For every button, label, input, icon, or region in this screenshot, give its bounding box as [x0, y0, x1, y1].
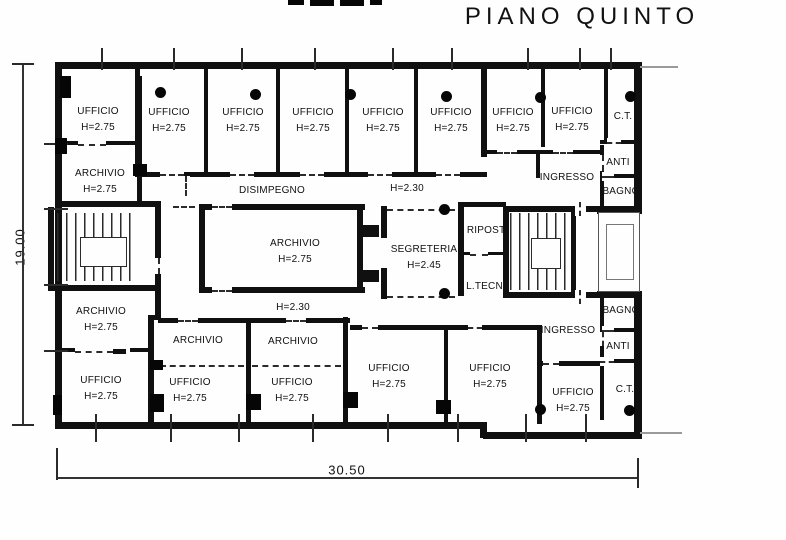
column-dot [439, 204, 450, 215]
room-label-ingresso-22: INGRESSO [541, 323, 595, 339]
dimension-tick [610, 48, 612, 70]
wall [199, 204, 205, 293]
dimension-tick [585, 414, 587, 442]
door-dash [212, 286, 232, 295]
room-name: BAGNO [602, 305, 639, 316]
room-height: H=2.75 [492, 121, 533, 137]
room-name: INGRESSO [541, 325, 595, 336]
room-height: H=2.75 [77, 120, 118, 136]
room-label-disimpegno-10: DISIMPEGNO [239, 183, 305, 199]
door-dash [607, 138, 621, 147]
door-dash [575, 202, 584, 216]
wall [600, 363, 604, 420]
room-name: ARCHIVIO [270, 238, 320, 249]
wall [483, 432, 640, 439]
room-name: UFFICIO [80, 375, 121, 386]
wall-pillar [150, 360, 163, 370]
room-label-archivio-15: ARCHIVIOH=2.75 [270, 236, 320, 268]
room-label-ufficio-4: UFFICIOH=2.75 [362, 105, 403, 137]
room-height: H=2.75 [270, 252, 320, 268]
room-name: UFFICIO [492, 107, 533, 118]
door-dash [286, 316, 306, 325]
room-height: H=2.75 [292, 121, 333, 137]
wall [541, 69, 545, 147]
column-dot [441, 91, 452, 102]
room-label-ufficio-31: UFFICIOH=2.75 [552, 385, 593, 417]
room-label-ufficio-7: UFFICIOH=2.75 [551, 104, 592, 136]
room-name: UFFICIO [292, 107, 333, 118]
wall [130, 348, 149, 352]
stairwell-right-landing [531, 238, 561, 269]
room-label-ufficio-0: UFFICIOH=2.75 [77, 104, 118, 136]
column-dot [439, 288, 450, 299]
room-label-ltecn-18: L.TECN. [466, 279, 506, 295]
wall-pillar [150, 394, 164, 412]
dimension-tick [527, 48, 529, 70]
column-dot [250, 89, 261, 100]
dimension-end-tick [12, 63, 34, 65]
room-height: H=2.75 [222, 121, 263, 137]
room-label-ufficio-28: UFFICIOH=2.75 [271, 375, 312, 407]
wall-pillar [133, 164, 147, 176]
room-name: H=2.30 [276, 302, 310, 313]
wall [537, 361, 542, 424]
room-label-ct-32: C.T. [616, 382, 635, 398]
door-dash [497, 148, 517, 157]
room-height: H=2.75 [362, 121, 403, 137]
room-label-ufficio-26: UFFICIOH=2.75 [80, 373, 121, 405]
wall [55, 422, 487, 429]
room-name: UFFICIO [148, 107, 189, 118]
room-label-archivio-9: ARCHIVIOH=2.75 [75, 166, 125, 198]
door-dash [252, 361, 341, 370]
door-dash [543, 359, 559, 368]
door-dash [553, 148, 573, 157]
dimension-tick [457, 414, 459, 442]
room-label-anti-13: ANTI [606, 155, 630, 171]
door-dash [575, 290, 584, 304]
dimension-tick [312, 414, 314, 442]
room-height: H=2.75 [271, 391, 312, 407]
room-label-ufficio-5: UFFICIOH=2.75 [430, 105, 471, 137]
room-name: RIPOST. [467, 225, 507, 236]
door-dash [181, 176, 190, 196]
dimension-end-tick [12, 424, 34, 426]
room-name: C.T. [614, 111, 633, 122]
room-height: H=2.75 [76, 320, 126, 336]
wall [458, 202, 506, 207]
room-name: ANTI [606, 341, 630, 352]
room-label-ufficio-27: UFFICIOH=2.75 [169, 375, 210, 407]
room-label-ufficio-1: UFFICIOH=2.75 [148, 105, 189, 137]
room-label-archivio-25: ARCHIVIO [268, 334, 318, 350]
column-dot [155, 87, 166, 98]
room-name: C.T. [616, 384, 635, 395]
column-dot [535, 404, 546, 415]
scan-mark [288, 0, 304, 5]
wall [604, 69, 608, 142]
door-dash [436, 170, 460, 179]
room-name: UFFICIO [430, 107, 471, 118]
room-height: H=2.75 [148, 121, 189, 137]
room-label-ufficio-30: UFFICIOH=2.75 [469, 361, 510, 393]
room-name: BAGNO [602, 186, 639, 197]
floor-plan: PIANO QUINTO 19.00 30.50 UFFICIOH=2.75UF… [0, 0, 786, 540]
room-label-h230-20: H=2.30 [276, 300, 310, 316]
wall [276, 69, 280, 175]
wall-pillar [60, 76, 71, 98]
dimension-tick [387, 414, 389, 442]
wall [614, 359, 638, 363]
wall [55, 201, 161, 207]
door-dash [230, 170, 254, 179]
dimension-tick [392, 48, 394, 70]
room-label-ufficio-29: UFFICIOH=2.75 [368, 361, 409, 393]
door-dash [300, 170, 324, 179]
scan-mark [370, 0, 382, 5]
room-name: L.TECN. [466, 281, 506, 292]
room-name: UFFICIO [169, 377, 210, 388]
room-label-ripost-17: RIPOST. [467, 223, 507, 239]
door-dash [470, 250, 488, 259]
room-name: UFFICIO [362, 107, 403, 118]
dimension-tick [579, 48, 581, 70]
wall [363, 225, 379, 237]
dimension-line-width [57, 477, 638, 479]
wall [414, 69, 418, 175]
wall [204, 69, 208, 175]
door-dash [78, 140, 106, 149]
dimension-end-tick [637, 458, 639, 488]
dimension-tick [525, 414, 527, 442]
room-label-archivio-24: ARCHIVIO [173, 333, 223, 349]
column-dot [535, 92, 546, 103]
dimension-tick [44, 284, 68, 286]
extension-line [640, 432, 682, 434]
door-dash [602, 172, 614, 181]
dimension-label-height: 19.00 [13, 228, 28, 266]
room-label-archivio-19: ARCHIVIOH=2.75 [76, 304, 126, 336]
wall [503, 206, 571, 212]
wall-pillar [436, 400, 451, 414]
room-name: ARCHIVIO [76, 306, 126, 317]
dimension-tick [44, 350, 68, 352]
room-name: UFFICIO [551, 106, 592, 117]
room-name: ANTI [606, 157, 630, 168]
door-dash [160, 361, 244, 370]
wall [155, 203, 161, 258]
room-name: UFFICIO [271, 377, 312, 388]
dimension-tick [314, 48, 316, 70]
room-height: H=2.75 [552, 401, 593, 417]
room-name: SEGRETERIA [391, 244, 457, 255]
wall [137, 76, 142, 204]
dimension-tick [44, 208, 68, 210]
room-name: H=2.30 [390, 183, 424, 194]
scan-mark [340, 0, 364, 6]
wall [48, 207, 54, 291]
wall [345, 69, 349, 175]
wall [614, 328, 638, 332]
door-dash [154, 258, 163, 274]
extension-line [640, 66, 678, 68]
dimension-tick [451, 48, 453, 70]
wall [571, 206, 576, 298]
room-height: H=2.45 [391, 258, 457, 274]
wall [155, 272, 161, 320]
room-label-ingresso-12: INGRESSO [540, 170, 594, 186]
room-height: H=2.75 [75, 182, 125, 198]
room-height: H=2.75 [430, 121, 471, 137]
room-name: UFFICIO [368, 363, 409, 374]
wall-pillar [343, 392, 358, 408]
room-name: ARCHIVIO [268, 336, 318, 347]
dimension-tick [173, 48, 175, 70]
door-dash [75, 347, 113, 356]
door-dash [212, 202, 232, 211]
dimension-tick [241, 48, 243, 70]
room-label-ufficio-2: UFFICIOH=2.75 [222, 105, 263, 137]
room-label-bagno-14: BAGNO [602, 184, 639, 200]
door-dash [178, 316, 198, 325]
door-dash [173, 202, 195, 211]
dimension-label-width: 30.50 [328, 463, 366, 478]
room-height: H=2.75 [169, 391, 210, 407]
wall-pillar [53, 395, 62, 415]
wall [113, 349, 126, 354]
room-label-bagno-21: BAGNO [602, 303, 639, 319]
scan-mark [310, 0, 334, 6]
room-name: ARCHIVIO [75, 168, 125, 179]
door-dash [600, 357, 614, 366]
column-dot [345, 89, 356, 100]
dimension-line-height [22, 64, 24, 426]
door-dash [368, 170, 392, 179]
room-name: INGRESSO [540, 172, 594, 183]
room-label-anti-23: ANTI [606, 339, 630, 355]
wall [55, 62, 641, 69]
room-label-ct-8: C.T. [614, 109, 633, 125]
door-dash [468, 323, 482, 332]
column-dot [625, 91, 636, 102]
dimension-tick [170, 414, 172, 442]
room-name: ARCHIVIO [173, 335, 223, 346]
room-label-ufficio-3: UFFICIOH=2.75 [292, 105, 333, 137]
dimension-tick [95, 414, 97, 442]
room-name: DISIMPEGNO [239, 185, 305, 196]
plan-title: PIANO QUINTO [465, 3, 699, 31]
room-height: H=2.75 [469, 377, 510, 393]
wall [503, 292, 571, 298]
wall [458, 204, 464, 296]
room-label-segreteria-16: SEGRETERIAH=2.45 [391, 242, 457, 274]
column-dot [624, 405, 635, 416]
stairwell-left-landing [80, 237, 127, 267]
wall-pillar [55, 138, 67, 154]
room-name: UFFICIO [222, 107, 263, 118]
room-label-h230-11: H=2.30 [390, 181, 424, 197]
dimension-tick [101, 48, 103, 70]
wall [614, 174, 638, 178]
room-height: H=2.75 [368, 377, 409, 393]
elevator-shaft-cab [606, 224, 634, 280]
room-name: UFFICIO [552, 387, 593, 398]
door-dash [362, 323, 378, 332]
dimension-tick [238, 414, 240, 442]
wall [363, 270, 379, 282]
room-height: H=2.75 [80, 389, 121, 405]
wall [481, 69, 487, 157]
room-height: H=2.75 [551, 120, 592, 136]
room-name: UFFICIO [77, 106, 118, 117]
wall-pillar [246, 394, 261, 410]
dimension-end-tick [56, 448, 58, 480]
room-label-ufficio-6: UFFICIOH=2.75 [492, 105, 533, 137]
room-name: UFFICIO [469, 363, 510, 374]
